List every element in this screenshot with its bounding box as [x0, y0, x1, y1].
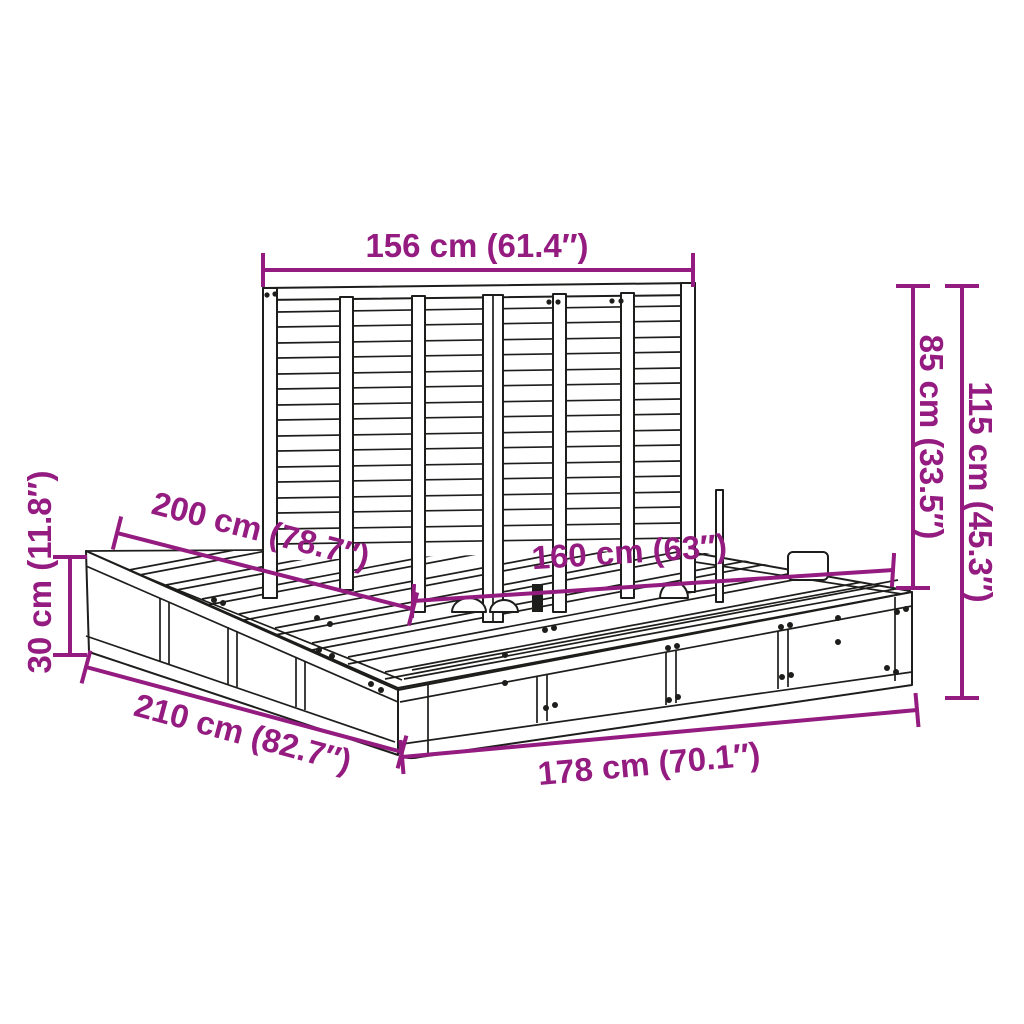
mount-block	[532, 584, 543, 612]
dimension-label-headboard-width: 156 cm (61.4″)	[365, 227, 588, 264]
dimension-label-total-height: 115 cm (45.3″)	[962, 381, 999, 602]
bed-frame-dimension-diagram: 156 cm (61.4″) 85 cm (33.5″) 115 cm (45.…	[0, 0, 1024, 1024]
dimension-label-base-height: 30 cm (11.8″)	[21, 471, 58, 674]
dimension-diagram-canvas: 156 cm (61.4″) 85 cm (33.5″) 115 cm (45.…	[0, 0, 1024, 1024]
dimension-label-headboard-height: 85 cm (33.5″)	[913, 335, 950, 540]
dimension-base-height: 30 cm (11.8″)	[21, 471, 87, 674]
dimension-headboard-height: 85 cm (33.5″)	[896, 286, 950, 588]
dimension-headboard-width: 156 cm (61.4″)	[263, 227, 693, 287]
dimension-total-height: 115 cm (45.3″)	[945, 286, 999, 698]
